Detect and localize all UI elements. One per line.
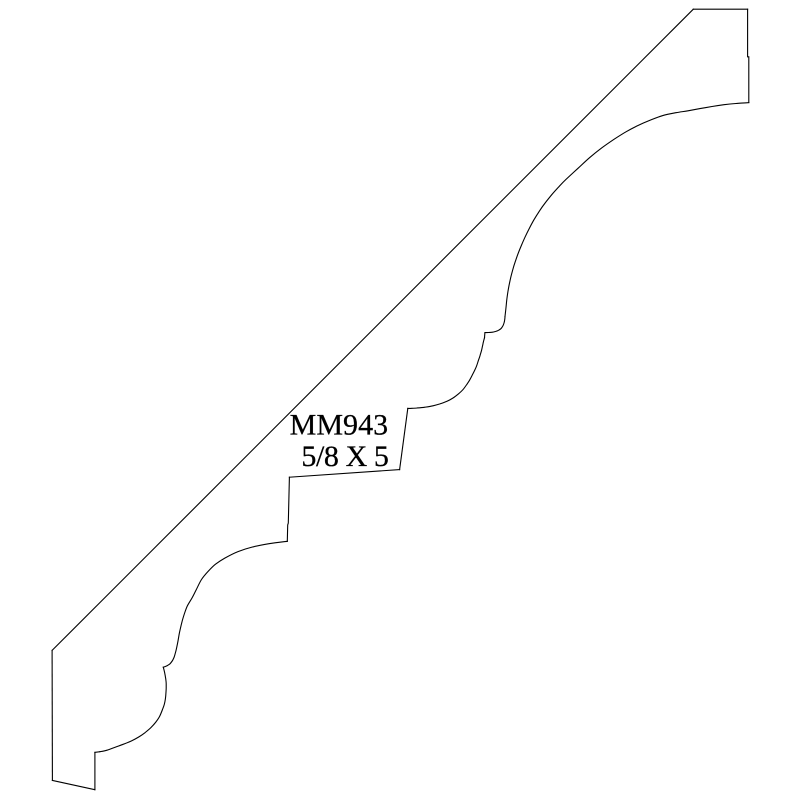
svg-text:MM943: MM943 [290, 408, 389, 441]
svg-text:5/8 X 5: 5/8 X 5 [301, 440, 389, 473]
